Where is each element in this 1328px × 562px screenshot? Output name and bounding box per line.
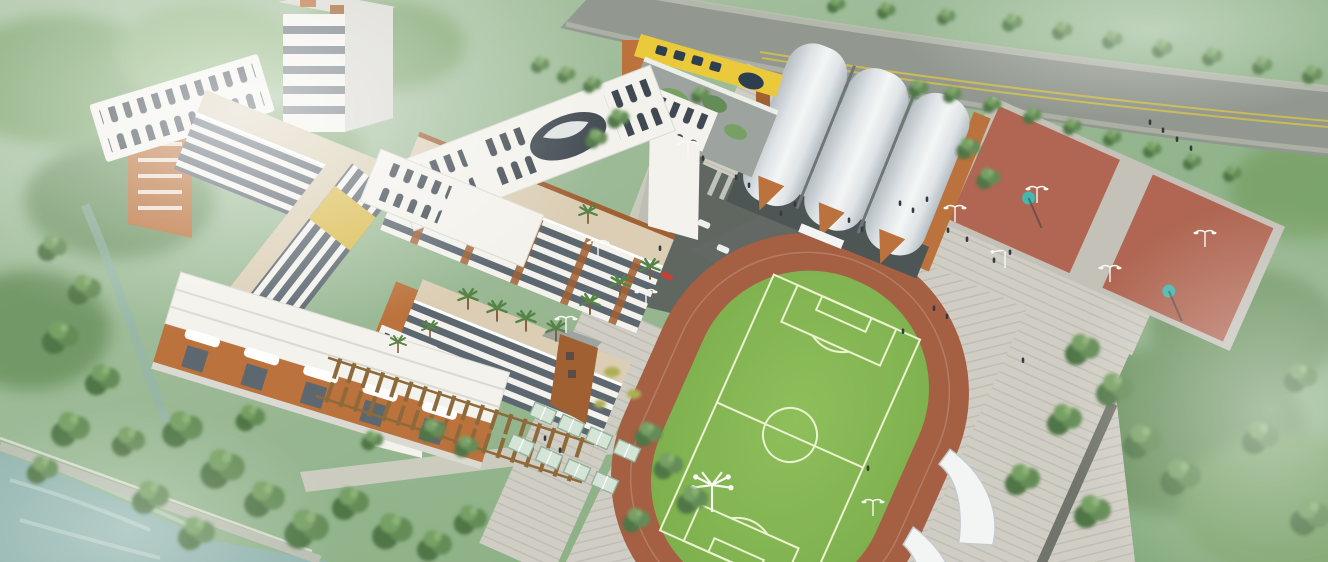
person: [735, 175, 738, 181]
person: [966, 237, 969, 243]
person: [780, 211, 783, 217]
person: [659, 246, 662, 252]
campus-rendering-canvas: [0, 0, 1328, 562]
person: [544, 436, 547, 442]
person: [1176, 137, 1179, 143]
person: [926, 197, 929, 203]
person: [946, 314, 949, 320]
person: [1009, 250, 1012, 256]
campus-aerial-rendering: [0, 0, 1328, 562]
rooftop-box: [330, 5, 344, 14]
person: [1022, 358, 1025, 364]
person: [902, 329, 905, 335]
person: [848, 218, 851, 224]
person: [702, 156, 705, 162]
person: [933, 306, 936, 312]
person: [1190, 146, 1193, 152]
shrub: [604, 367, 620, 377]
person: [794, 202, 797, 208]
person: [1162, 128, 1165, 134]
shrub: [627, 389, 641, 399]
person: [993, 258, 996, 264]
person: [748, 183, 751, 189]
rooftop-box: [300, 0, 316, 7]
person: [947, 228, 950, 234]
person: [559, 448, 562, 454]
person: [861, 227, 864, 233]
person: [867, 466, 870, 472]
glass-tower: [278, 0, 396, 132]
tower-side-face: [345, 7, 393, 132]
person: [1149, 120, 1152, 126]
person: [912, 208, 915, 214]
shrub: [594, 400, 606, 408]
person: [899, 201, 902, 207]
